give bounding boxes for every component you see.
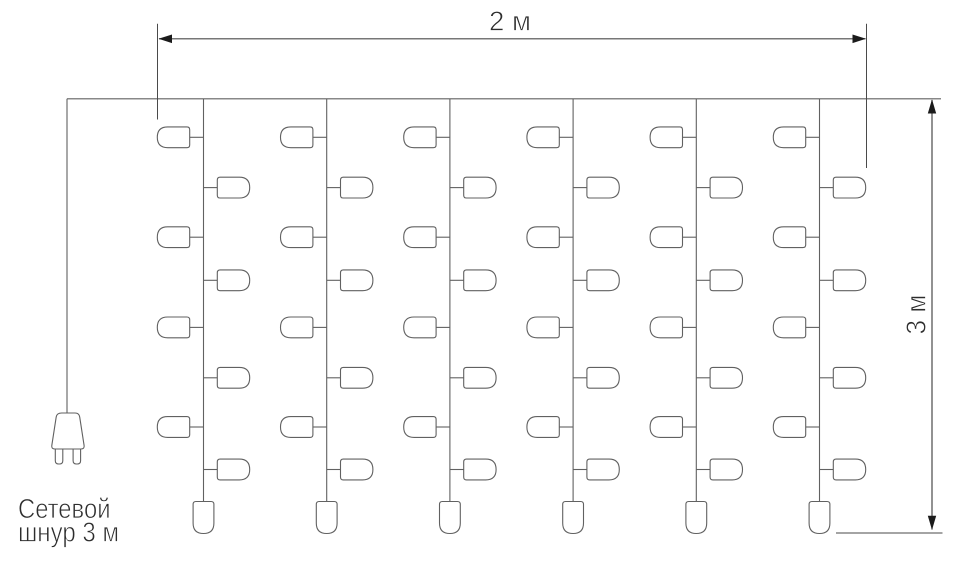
svg-text:2 м: 2 м	[489, 6, 531, 37]
svg-text:шнур 3 м: шнур 3 м	[18, 517, 119, 548]
svg-text:3 м: 3 м	[901, 295, 932, 335]
